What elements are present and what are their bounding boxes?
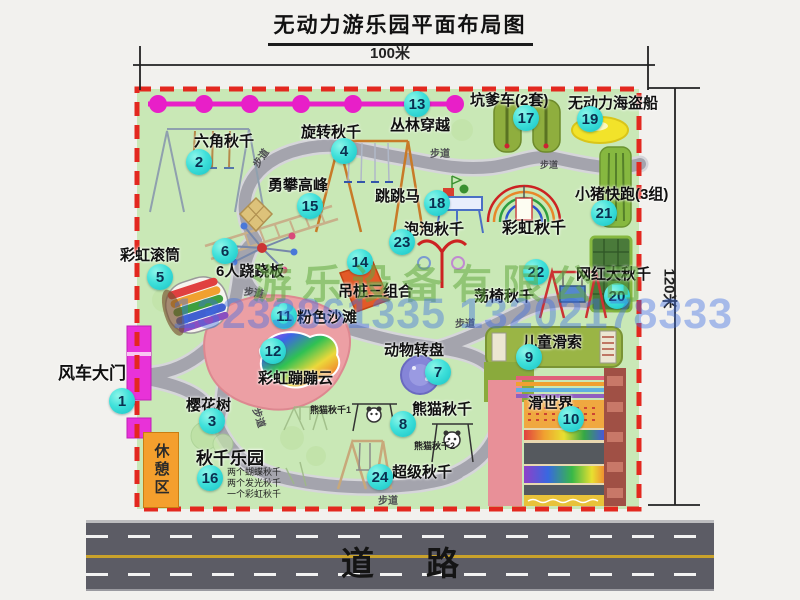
label-peak-climbing: 勇攀高峰: [268, 174, 328, 195]
label-swing-chair: 荡椅秋千: [474, 285, 534, 306]
label-pink-beach: 粉色沙滩: [297, 306, 357, 327]
label-rotating-swing: 旋转秋千: [301, 121, 361, 142]
walkway-label: 步道: [540, 158, 558, 171]
label-hanging-piles: 吊桩三组合: [338, 280, 413, 301]
badge-17: 17: [513, 105, 539, 131]
walkway-label: 步道: [455, 315, 475, 330]
road: 道路: [86, 520, 714, 591]
road-label: 道路: [86, 537, 714, 585]
label-rainbow-roller: 彩虹滚筒: [120, 244, 180, 265]
badge-9: 9: [516, 344, 542, 370]
badge-18: 18: [424, 190, 450, 216]
badge-4: 4: [331, 138, 357, 164]
label-hexagon-swing: 六角秋千: [194, 130, 254, 151]
badge-2: 2: [186, 149, 212, 175]
label-rainbow-swing: 彩虹秋千: [502, 214, 566, 238]
label-animal-carousel: 动物转盘: [384, 339, 444, 360]
label-piggy-run: 小猪快跑(3组): [575, 183, 668, 204]
label-panda-swing-1: 熊猫秋千1: [310, 403, 351, 416]
badge-5: 5: [147, 264, 173, 290]
badge-23: 23: [389, 229, 415, 255]
badge-15: 15: [297, 193, 323, 219]
label-rainbow-cloud: 彩虹蹦蹦云: [258, 367, 333, 388]
rest-area: 休憩区: [143, 432, 179, 508]
swing-park-detail-3: 一个彩虹秋千: [227, 489, 281, 500]
swing-park-detail-2: 两个发光秋千: [227, 478, 281, 489]
walkway-label: 步道: [430, 145, 450, 160]
badge-3: 3: [199, 408, 225, 434]
badge-11: 11: [271, 303, 297, 329]
swing-park-detail-1: 两个蝴蝶秋千: [227, 467, 281, 478]
label-pit-car: 坑爹车(2套): [470, 89, 548, 110]
badge-10: 10: [558, 406, 584, 432]
badge-21: 21: [591, 200, 617, 226]
badge-8: 8: [390, 411, 416, 437]
badge-22: 22: [523, 259, 549, 285]
park-plan-screenshot: 无动力游乐园平面布局图 100米 120米 道路 休憩区 风车大门 六角秋千 樱…: [0, 0, 800, 600]
label-jumping-horse: 跳跳马: [375, 185, 420, 206]
badge-1: 1: [109, 388, 135, 414]
label-big-swing: 网红大秋千: [576, 263, 651, 284]
walkway-label: 步道: [378, 492, 398, 507]
label-super-swing: 超级秋千: [392, 461, 452, 482]
badge-6: 6: [212, 238, 238, 264]
walkway-label: 步道: [243, 283, 265, 301]
badge-20: 20: [604, 283, 630, 309]
badge-14: 14: [347, 249, 373, 275]
label-windmill-gate: 风车大门: [58, 359, 126, 384]
label-panda-swing-2: 熊猫秋千2: [414, 439, 455, 452]
label-jungle-crossing: 丛林穿越: [390, 114, 450, 135]
badge-7: 7: [425, 359, 451, 385]
label-panda-swing: 熊猫秋千: [412, 398, 472, 419]
badge-19: 19: [577, 106, 603, 132]
badge-12: 12: [260, 338, 286, 364]
badge-13: 13: [404, 91, 430, 117]
badge-24: 24: [367, 464, 393, 490]
slide-world-icon: [484, 362, 626, 506]
badge-16: 16: [197, 465, 223, 491]
